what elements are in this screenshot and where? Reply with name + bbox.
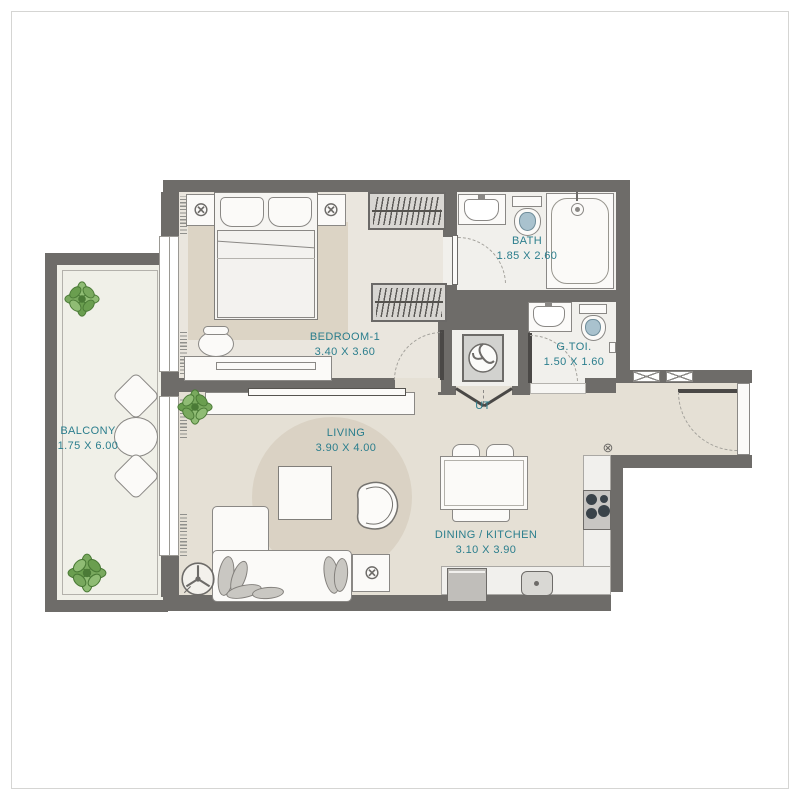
room-name: LIVING — [306, 426, 386, 441]
burner-icon — [586, 494, 597, 505]
pillow — [268, 197, 312, 227]
lamp-icon: ⊗ — [190, 200, 212, 220]
label-dining: DINING / KITCHEN 3.10 X 3.90 — [434, 528, 538, 558]
entry-frame-cap — [735, 376, 752, 383]
gtoi-threshold — [530, 383, 586, 394]
room-name: UT — [468, 399, 498, 414]
room-name: DINING / KITCHEN — [434, 528, 538, 543]
room-dims: 3.10 X 3.90 — [434, 543, 538, 558]
room-dims: 3.40 X 3.60 — [290, 345, 400, 360]
label-gtoi: G.TOI. 1.50 X 1.60 — [536, 340, 612, 370]
wall-balcony-top — [45, 253, 168, 265]
room-name: G.TOI. — [536, 340, 612, 355]
wall-bath-bottom — [457, 290, 616, 302]
wall-right-upper — [616, 192, 630, 383]
wardrobe-rail — [375, 301, 443, 303]
shower-pipe — [576, 191, 578, 201]
lamp-icon: ⊗ — [320, 200, 342, 220]
gtoi-toilet-tank — [579, 304, 607, 314]
wall-left-a — [161, 192, 179, 236]
gtoi-toilet-seat — [585, 319, 601, 336]
room-dims: 1.50 X 1.60 — [536, 355, 612, 370]
plant-icon — [66, 552, 108, 594]
wall-corridor-bottom — [611, 455, 752, 468]
blanket-sheet-line — [217, 258, 315, 259]
label-bedroom: BEDROOM-1 3.40 X 3.60 — [290, 330, 400, 360]
wardrobe-rail — [372, 210, 442, 212]
dresser-tray — [216, 362, 316, 370]
kitchen-sink-drain — [534, 581, 539, 586]
dining-table-inner — [444, 460, 524, 506]
wall-left-c — [161, 556, 179, 597]
burner-icon — [586, 508, 597, 519]
fridge — [447, 568, 487, 602]
room-name: BEDROOM-1 — [290, 330, 400, 345]
ceiling-fan-icon — [179, 560, 217, 598]
faucet-icon — [478, 195, 485, 200]
bathtub-drain-dot — [575, 207, 580, 212]
wardrobe-bottom — [371, 283, 447, 322]
burner-icon — [598, 505, 610, 517]
label-balcony: BALCONY 1.75 X 6.00 — [50, 424, 126, 454]
floor-plan: ⊗ ⊗ — [0, 0, 800, 800]
shaft-box — [666, 371, 693, 382]
label-ut: UT — [468, 399, 498, 414]
tv — [248, 388, 406, 396]
room-name: BATH — [490, 234, 564, 249]
armchair — [350, 478, 400, 534]
room-name: BALCONY — [50, 424, 126, 439]
room-dims: 1.85 X 2.60 — [490, 249, 564, 264]
lamp-icon: ⊗ — [361, 563, 383, 583]
coffee-table — [278, 466, 332, 520]
fridge-top-line — [449, 571, 485, 573]
wall-gtoi-bottom — [585, 378, 616, 393]
bath-toilet-tank — [512, 196, 542, 207]
stool-back — [203, 326, 229, 335]
wall-kitchen-right — [611, 468, 623, 580]
washing-machine-icon — [462, 334, 504, 382]
room-dims: 1.75 X 6.00 — [50, 439, 126, 454]
shaft-box — [633, 371, 660, 382]
bath-door-leaf — [452, 235, 458, 285]
entry-door-frame — [737, 383, 750, 455]
wall-top — [163, 180, 630, 192]
room-dims: 3.90 X 4.00 — [306, 441, 386, 456]
window-bedroom — [159, 236, 179, 372]
bath-toilet-seat — [519, 212, 536, 231]
label-living: LIVING 3.90 X 4.00 — [306, 426, 386, 456]
faucet-icon — [545, 303, 552, 307]
burner-icon — [600, 495, 608, 503]
plant-icon — [176, 386, 214, 428]
pillow — [220, 197, 264, 227]
gas-point-icon: ⊗ — [600, 441, 616, 454]
wardrobe-top — [368, 192, 446, 230]
wall-balcony-bottom — [45, 600, 168, 612]
label-bath: BATH 1.85 X 2.60 — [490, 234, 564, 264]
bath-sink-basin — [464, 199, 499, 221]
curtain-icon — [180, 514, 187, 556]
gtoi-sink-basin — [533, 306, 565, 327]
plant-icon — [62, 280, 102, 318]
